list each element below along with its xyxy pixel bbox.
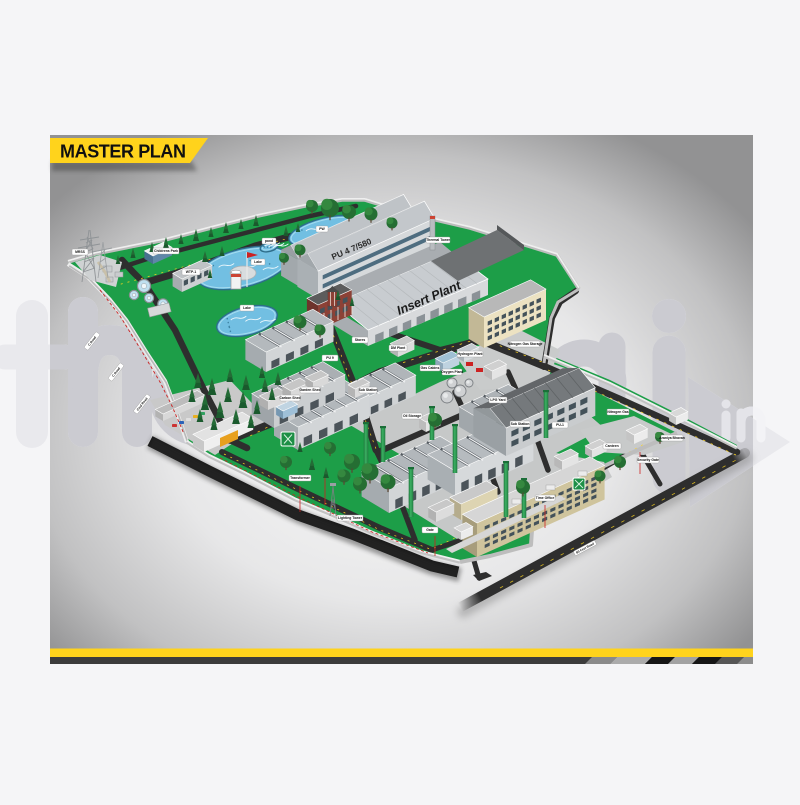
svg-text:Oxygen Plant: Oxygen Plant [441,370,464,374]
svg-text:Garden Shed: Garden Shed [299,388,320,392]
svg-text:DM Plant: DM Plant [391,346,406,350]
svg-text:Lighting Tower: Lighting Tower [338,516,363,520]
svg-text:Nitrogen Gas Storage: Nitrogen Gas Storage [508,342,543,346]
svg-text:Sub Station: Sub Station [359,388,378,392]
svg-text:Gas Cabins: Gas Cabins [421,366,440,370]
svg-text:Sub Station: Sub Station [511,422,530,426]
svg-text:Canteen: Canteen [605,444,618,448]
svg-text:Security Gate: Security Gate [637,458,659,462]
svg-text:Araniya Bhavan: Araniya Bhavan [659,436,685,440]
svg-text:Gate: Gate [426,528,434,532]
svg-text:pond: pond [265,239,273,243]
svg-text:Transformer: Transformer [290,476,310,480]
svg-text:Stores: Stores [355,338,366,342]
svg-text:Lake: Lake [254,260,262,264]
svg-text:Nitrogen Gas: Nitrogen Gas [607,410,628,414]
svg-text:LPG Yard: LPG Yard [490,398,505,402]
svg-text:Oil Storage: Oil Storage [403,414,421,418]
svg-text:Thermal Tower: Thermal Tower [426,238,451,242]
svg-text:PU-1: PU-1 [556,423,564,427]
svg-text:Childrens Park: Childrens Park [154,249,178,253]
svg-text:MASTER PLAN: MASTER PLAN [60,142,186,162]
svg-text:Time Office: Time Office [536,496,555,500]
svg-text:MRSS: MRSS [75,250,86,254]
svg-text:Carbon Shed: Carbon Shed [279,396,300,400]
svg-text:PU 9: PU 9 [326,356,334,360]
svg-text:WTP-1: WTP-1 [186,270,197,274]
svg-text:PW: PW [319,227,325,231]
svg-text:Hydrogen Plant: Hydrogen Plant [457,352,483,356]
svg-text:Lake: Lake [243,306,251,310]
